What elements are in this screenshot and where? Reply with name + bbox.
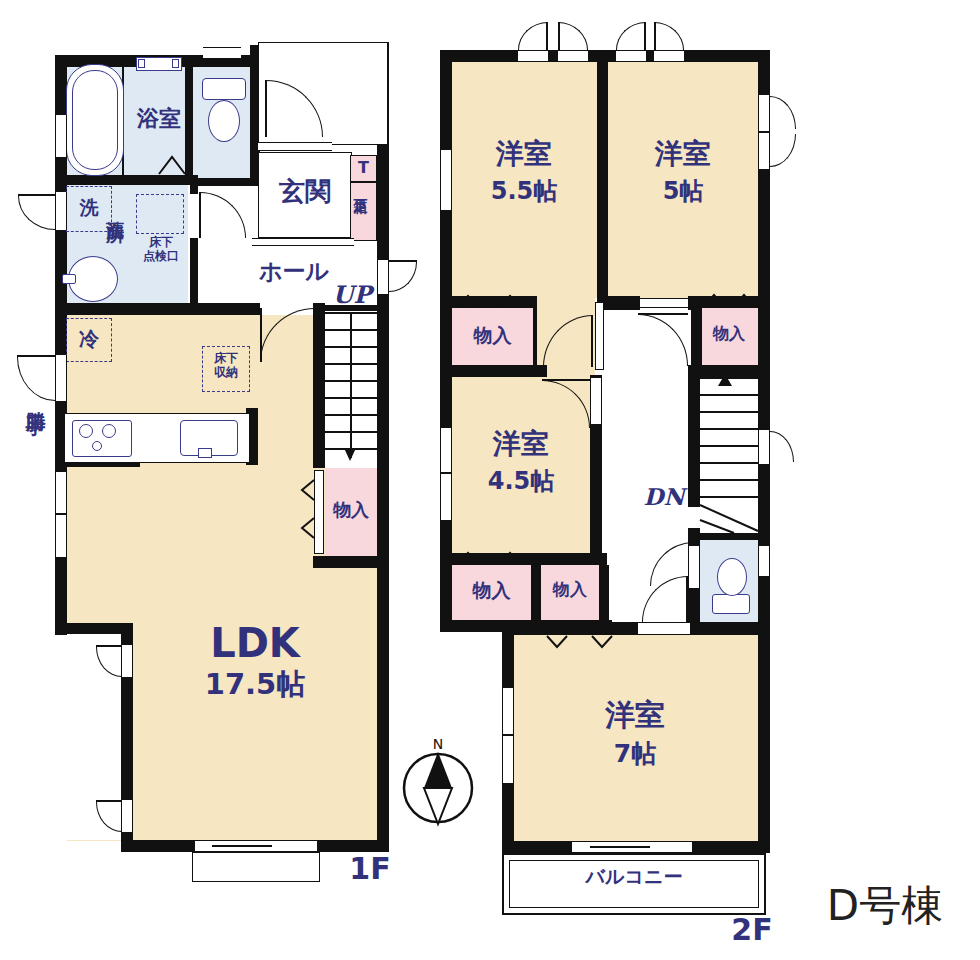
window xyxy=(758,133,770,169)
door-leaf xyxy=(260,308,262,362)
wall-segment xyxy=(597,50,608,308)
toilet-bowl-2f xyxy=(717,558,747,596)
underfloor-storage-line2: 収納 xyxy=(214,365,238,379)
compass-icon xyxy=(404,754,472,822)
underfloor-storage-line1: 床下 xyxy=(214,351,238,365)
window xyxy=(654,50,684,62)
room-fill-bedroom4 xyxy=(514,635,758,841)
stairs-1f-center-rail xyxy=(350,312,352,458)
fridge-label: 冷 xyxy=(66,328,112,351)
washroom-exterior-door-arc xyxy=(18,196,55,230)
stairs-down-label: DN xyxy=(636,484,692,510)
stairs-up-label: UP xyxy=(326,281,378,309)
casement-window-arc xyxy=(616,22,646,50)
shoe-box-t-label: T xyxy=(350,159,377,177)
door-threshold xyxy=(640,298,688,308)
door-leaf xyxy=(638,313,688,315)
window-tick xyxy=(502,734,514,736)
window-tick xyxy=(440,472,452,474)
genkan-step xyxy=(252,238,354,246)
toilet-tank-2f xyxy=(712,594,750,614)
compass-north-label: N xyxy=(424,736,452,752)
bedroom1-size-label: 5.5帖 xyxy=(454,178,594,206)
casement-window-arc xyxy=(518,22,548,50)
toilet-bowl-1f xyxy=(208,100,240,142)
wall-segment xyxy=(502,622,768,635)
ldk-size-label: 17.5帖 xyxy=(175,668,335,701)
door-leaf xyxy=(18,194,55,196)
washroom-hall-door-leaf xyxy=(199,192,201,238)
washroom-hall-door-arc xyxy=(200,192,246,238)
window-leaf xyxy=(654,22,656,50)
closet-1f-label: 物入 xyxy=(325,500,377,521)
underfloor-hatch-line1: 床下 xyxy=(149,235,173,249)
bedroom3-name-label: 洋室 xyxy=(452,428,590,460)
bath-counter-knob xyxy=(138,59,145,68)
washroom-label: 洗面所 xyxy=(106,206,124,212)
wall-segment xyxy=(599,565,609,632)
shoe-box-divider xyxy=(350,181,377,183)
underfloor-hatch-line2: 点検口 xyxy=(143,249,179,263)
nook-partition xyxy=(595,302,604,370)
bedroom4-door-arc xyxy=(642,576,688,622)
door-gap xyxy=(590,378,602,424)
bedroom3-size-label: 4.5帖 xyxy=(452,468,590,496)
closet-2f-bottom-left-label: 物入 xyxy=(452,580,531,602)
floor2-label: 2F xyxy=(724,913,780,948)
window-leaf xyxy=(546,22,548,50)
terrace-step xyxy=(192,852,320,882)
wall-segment xyxy=(531,565,541,620)
window-tick xyxy=(55,513,67,515)
wall-segment xyxy=(440,553,607,565)
floor-plan-canvas: 物入 玄関 T 下足箱 ホール UP 浴室 洗 床下 点検口 洗面所 冷 床下 … xyxy=(0,0,980,960)
closet-2f-top-left-label: 物入 xyxy=(452,325,533,347)
floor1-label: 1F xyxy=(342,852,398,887)
window xyxy=(758,546,770,576)
sliding-door-mid xyxy=(590,846,650,848)
wall-segment xyxy=(313,556,389,568)
basin-tap xyxy=(62,274,76,284)
window xyxy=(121,800,133,832)
window-leaf xyxy=(558,22,560,50)
closet-2f-bottom-mid-label: 物入 xyxy=(541,580,599,600)
underfloor-storage-label: 床下 収納 xyxy=(202,352,250,380)
window-leaf xyxy=(644,22,646,50)
entrance-threshold xyxy=(258,142,332,151)
sink-faucet xyxy=(198,448,212,458)
door-leaf xyxy=(542,379,590,381)
door-leaf xyxy=(686,576,688,622)
window xyxy=(558,50,588,62)
casement-window-arc xyxy=(389,262,417,292)
stove-burner xyxy=(102,424,116,438)
compass-needle-south xyxy=(424,788,452,824)
window xyxy=(758,95,770,131)
casement-window-arc xyxy=(770,431,794,462)
window xyxy=(121,645,133,677)
window xyxy=(616,50,646,62)
bath-label: 浴室 xyxy=(128,106,190,131)
compass-needle-north xyxy=(424,752,452,788)
bedroom4-name-label: 洋室 xyxy=(565,698,705,733)
bedroom2-size-label: 5帖 xyxy=(613,178,753,206)
stove-burner xyxy=(79,424,93,438)
toilet-window xyxy=(203,47,241,59)
balcony-label: バルコニー xyxy=(534,866,734,888)
toilet-tank-1f xyxy=(202,78,246,100)
door-gap xyxy=(55,192,67,230)
genkan-label: 玄関 xyxy=(258,177,352,207)
sliding-door-mid xyxy=(212,845,272,847)
closet-2f-top-right-label: 物入 xyxy=(700,325,758,343)
window xyxy=(55,115,67,157)
window xyxy=(518,50,548,62)
wall-segment xyxy=(377,125,389,852)
window xyxy=(377,260,389,294)
closet-1f-door xyxy=(314,470,324,554)
entrance-door-leaf xyxy=(265,80,267,137)
building-title: D号棟 xyxy=(800,882,970,930)
stove-burner xyxy=(92,441,102,451)
bath-counter-knob xyxy=(172,59,179,68)
bedroom2-door-arc xyxy=(638,314,688,366)
wall-segment xyxy=(55,175,198,185)
shoe-box-label: 下足箱 xyxy=(354,187,368,190)
window-leaf xyxy=(96,800,122,802)
window-leaf xyxy=(96,645,122,647)
casement-window-arc xyxy=(654,22,684,50)
wall-segment xyxy=(193,178,260,186)
wall-segment xyxy=(55,303,260,315)
stairs-2f xyxy=(700,377,758,505)
casement-window-arc xyxy=(558,22,588,50)
door-leaf xyxy=(17,355,55,357)
window xyxy=(440,150,452,210)
door-threshold xyxy=(638,622,690,635)
door-gap xyxy=(55,355,67,401)
bedroom4-size-label: 7帖 xyxy=(565,740,705,769)
wall-segment xyxy=(688,365,770,377)
stairs-2f-winders xyxy=(700,505,758,533)
underfloor-hatch-label: 床下 点検口 xyxy=(126,236,196,264)
window xyxy=(758,430,770,464)
door-leaf xyxy=(591,315,593,367)
window xyxy=(440,428,452,520)
wall-segment xyxy=(440,50,452,632)
bedroom2-name-label: 洋室 xyxy=(613,138,753,170)
casement-window-arc xyxy=(770,134,796,167)
wall-segment xyxy=(440,365,547,377)
bathtub-inner xyxy=(72,70,118,170)
bedroom1-name-label: 洋室 xyxy=(454,138,594,170)
back-door-arc xyxy=(17,357,55,401)
underfloor-hatch-box xyxy=(136,194,184,234)
ldk-name-label: LDK xyxy=(185,620,325,666)
casement-window-arc xyxy=(770,96,796,129)
window-leaf xyxy=(389,260,417,262)
